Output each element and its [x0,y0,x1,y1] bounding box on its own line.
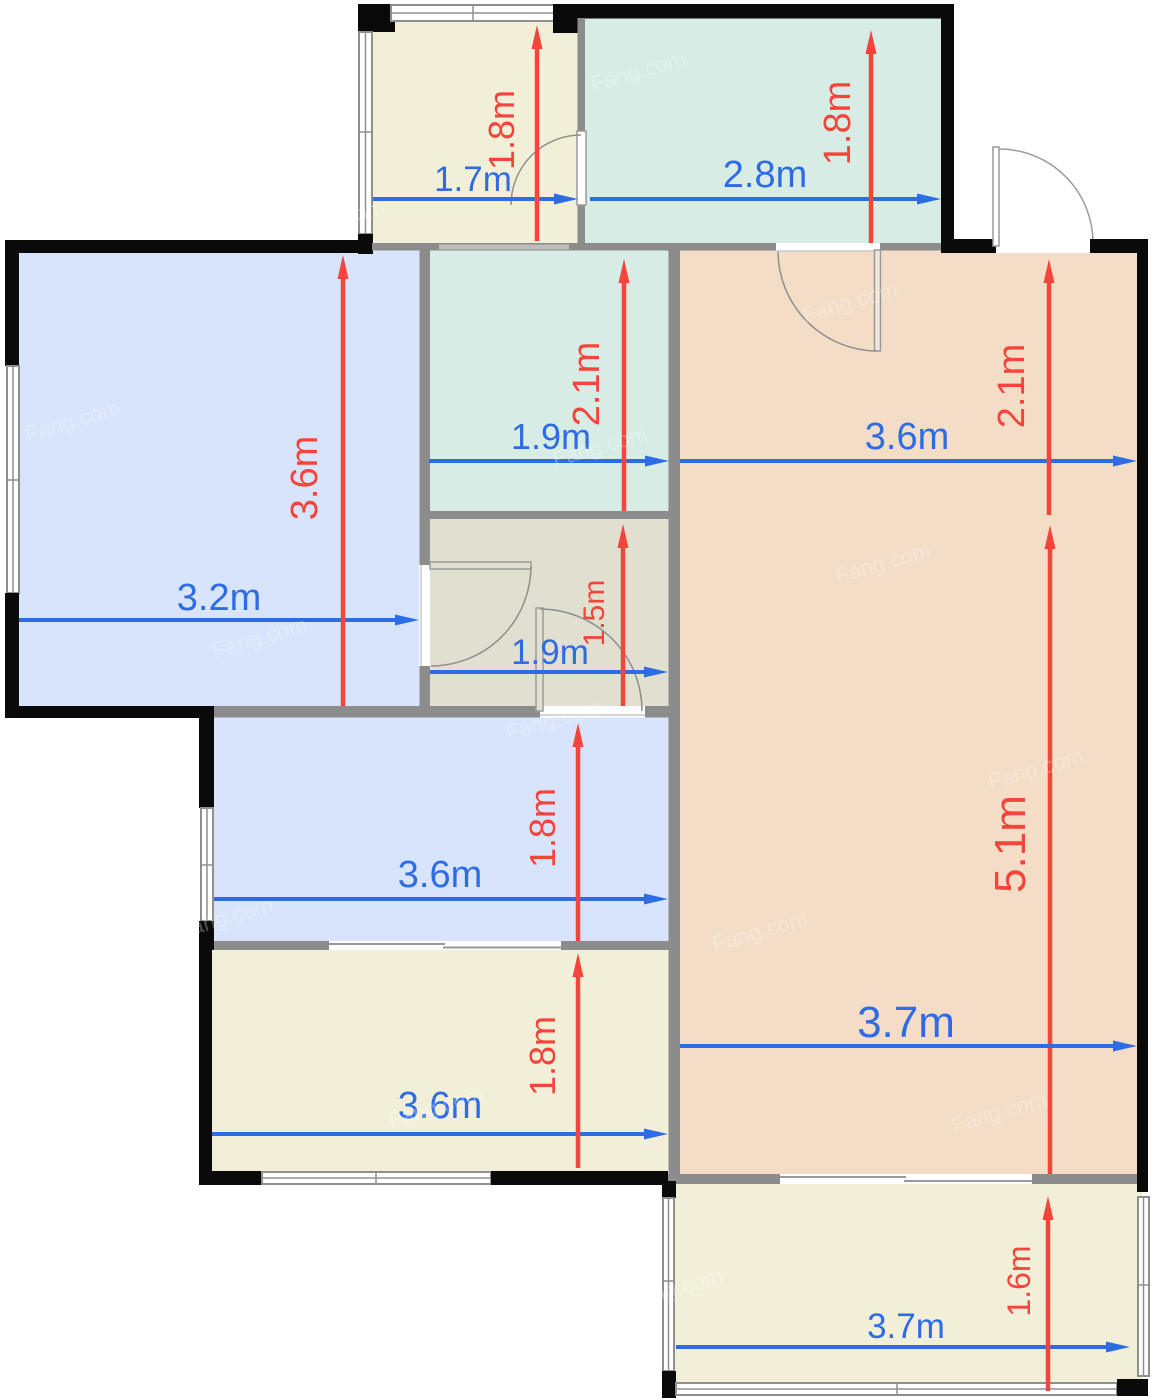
svg-text:1.8m: 1.8m [522,788,563,868]
svg-text:3.6m: 3.6m [284,436,326,520]
svg-text:1.5m: 1.5m [578,580,611,647]
svg-text:3.7m: 3.7m [867,1307,945,1346]
svg-text:3.7m: 3.7m [857,998,955,1047]
svg-text:1.6m: 1.6m [1001,1245,1037,1316]
svg-text:2.8m: 2.8m [723,154,807,196]
svg-text:1.8m: 1.8m [481,90,522,170]
svg-text:3.6m: 3.6m [865,416,949,458]
svg-text:5.1m: 5.1m [986,795,1035,893]
svg-text:1.8m: 1.8m [522,1016,563,1096]
svg-text:3.6m: 3.6m [398,854,482,896]
svg-text:2.1m: 2.1m [991,344,1033,428]
svg-text:2.1m: 2.1m [566,342,608,426]
svg-text:3.2m: 3.2m [177,577,261,619]
svg-text:1.8m: 1.8m [817,81,859,165]
